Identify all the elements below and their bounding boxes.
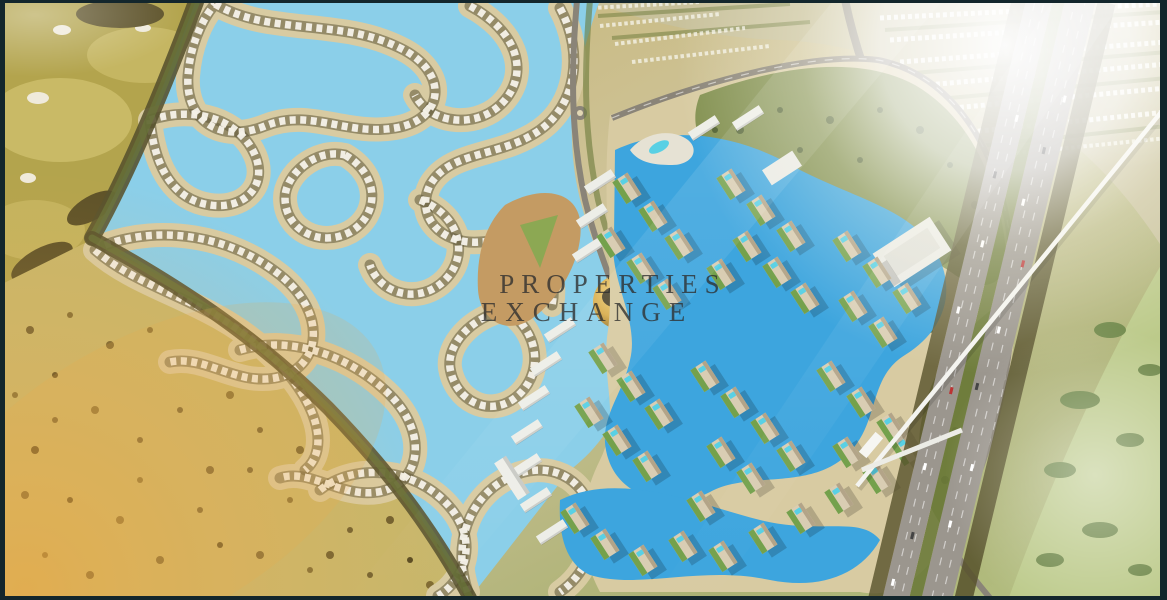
aerial-render [0,0,1167,600]
aerial-render-stage: PROPERTIES EXCHANGE [0,0,1167,600]
